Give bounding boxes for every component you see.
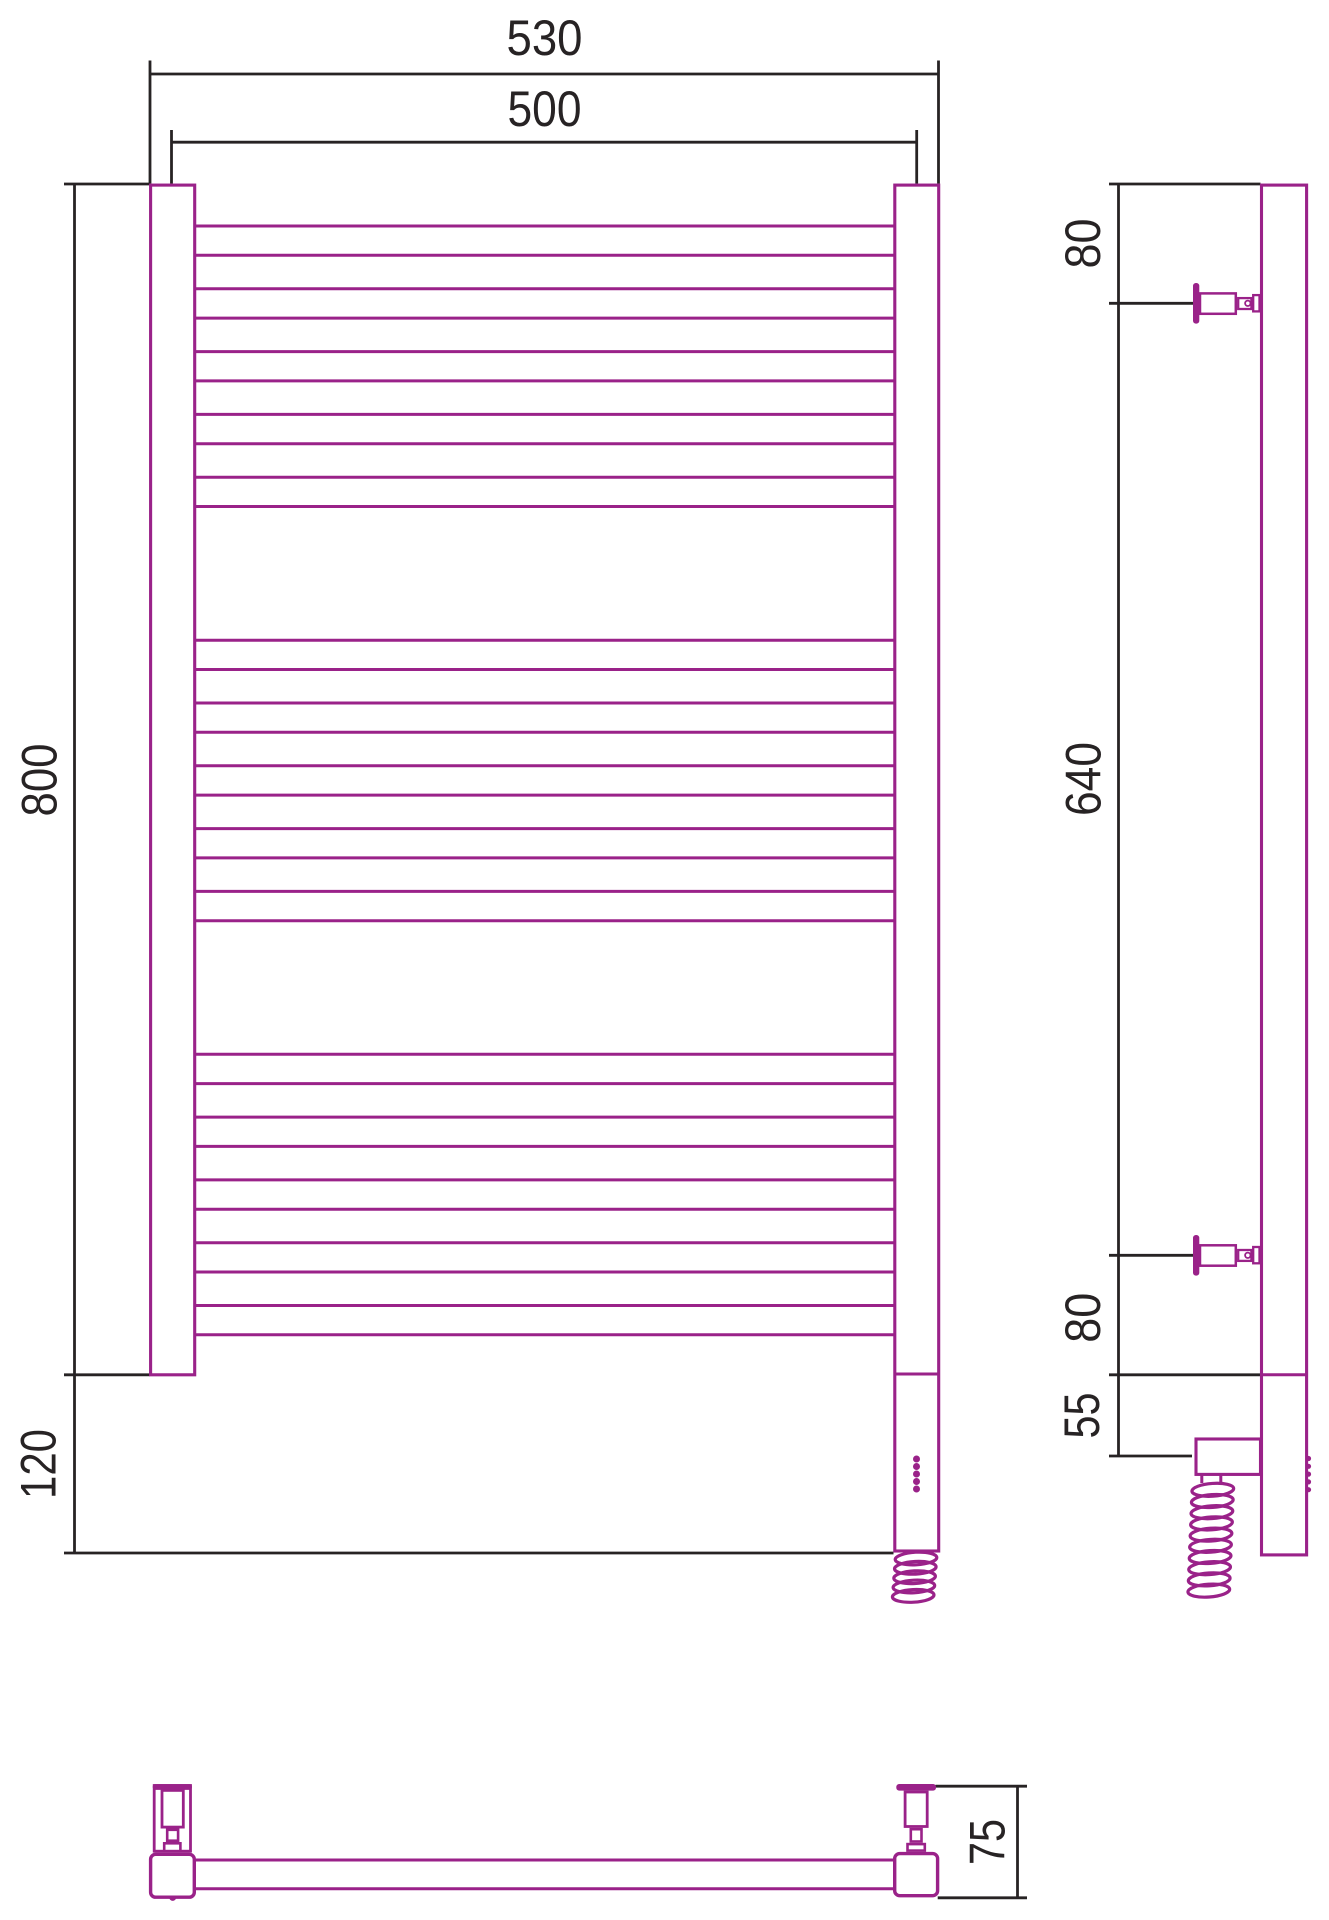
svg-text:120: 120 [11, 1429, 67, 1499]
svg-text:75: 75 [960, 1819, 1016, 1865]
svg-text:55: 55 [1054, 1393, 1110, 1439]
svg-text:500: 500 [508, 81, 582, 137]
svg-text:80: 80 [1055, 219, 1111, 269]
svg-text:800: 800 [12, 744, 68, 817]
svg-text:530: 530 [507, 10, 583, 66]
svg-text:80: 80 [1055, 1293, 1111, 1343]
svg-text:640: 640 [1056, 742, 1112, 816]
